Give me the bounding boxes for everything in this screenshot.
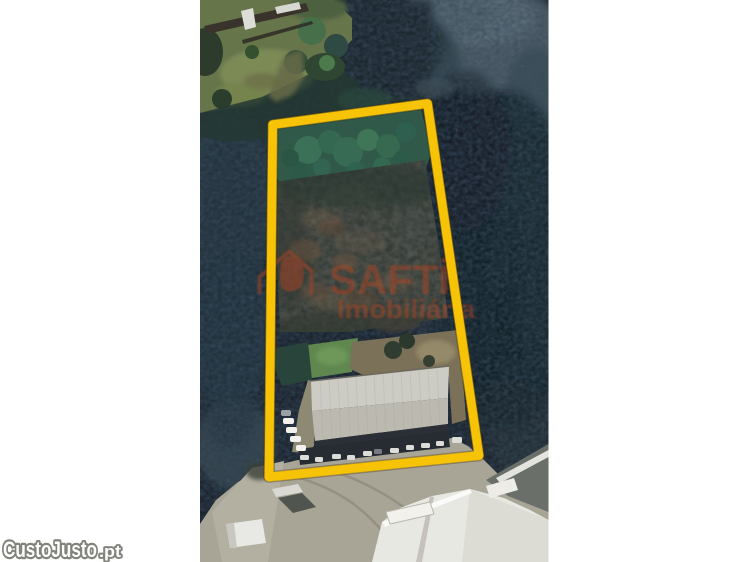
- svg-text:CustoJusto: CustoJusto: [3, 537, 97, 562]
- svg-text:.pt: .pt: [99, 542, 121, 561]
